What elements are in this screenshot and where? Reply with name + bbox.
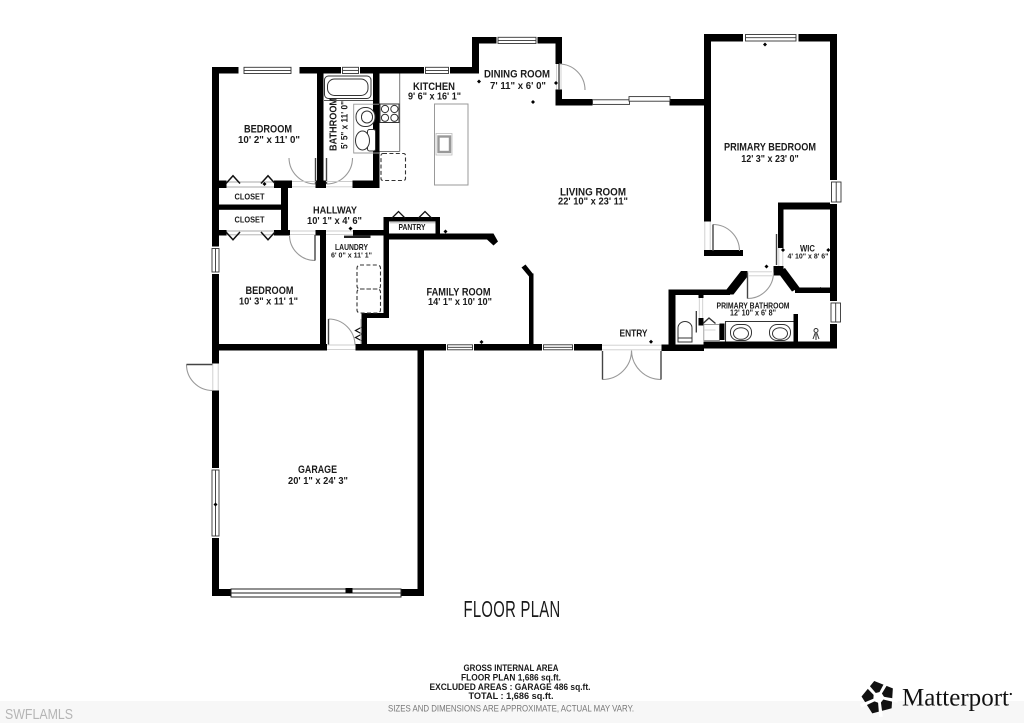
svg-text:7' 11" x 6' 0": 7' 11" x 6' 0" <box>490 81 546 92</box>
svg-text:SWFLAMLS: SWFLAMLS <box>5 707 73 723</box>
svg-text:10' 3" x 11' 1": 10' 3" x 11' 1" <box>239 297 298 308</box>
svg-text:14' 1" x 10' 10": 14' 1" x 10' 10" <box>428 297 492 308</box>
svg-text:BEDROOM: BEDROOM <box>246 285 294 297</box>
svg-text:9' 6" x 16' 1": 9' 6" x 16' 1" <box>408 92 461 103</box>
svg-text:PRIMARY BEDROOM: PRIMARY BEDROOM <box>724 142 816 154</box>
svg-text:22' 10" x 23' 11": 22' 10" x 23' 11" <box>558 197 628 208</box>
svg-text:20' 1" x 24' 3": 20' 1" x 24' 3" <box>288 476 348 487</box>
svg-text:10' 2" x 11' 0": 10' 2" x 11' 0" <box>238 135 300 146</box>
svg-text:FLOOR PLAN: FLOOR PLAN <box>464 596 561 622</box>
svg-text:GARAGE: GARAGE <box>298 464 337 476</box>
svg-text:CLOSET: CLOSET <box>235 215 266 225</box>
svg-text:BEDROOM: BEDROOM <box>244 124 292 136</box>
svg-text:4' 10" x 8' 6": 4' 10" x 8' 6" <box>788 252 829 261</box>
svg-text:10' 1" x 4' 6": 10' 1" x 4' 6" <box>307 216 362 227</box>
svg-text:HALLWAY: HALLWAY <box>313 206 357 217</box>
svg-text:5' 5" x 11' 0": 5' 5" x 11' 0" <box>340 101 351 149</box>
svg-text:12' 10" x 6' 8": 12' 10" x 6' 8" <box>730 309 776 318</box>
svg-text:PANTRY: PANTRY <box>399 222 426 232</box>
svg-text:BATHROOM: BATHROOM <box>328 98 340 151</box>
svg-text:6' 0" x 11' 1": 6' 0" x 11' 1" <box>331 251 372 260</box>
svg-text:ENTRY: ENTRY <box>620 329 648 340</box>
svg-text:Matterport: Matterport <box>902 685 1009 712</box>
svg-text:SIZES AND DIMENSIONS ARE APPRO: SIZES AND DIMENSIONS ARE APPROXIMATE, AC… <box>388 704 634 714</box>
svg-text:DINING ROOM: DINING ROOM <box>484 69 550 81</box>
svg-text:CLOSET: CLOSET <box>235 192 266 202</box>
svg-text:TOTAL : 1,686 sq.ft.: TOTAL : 1,686 sq.ft. <box>469 691 554 702</box>
svg-text:12' 3" x 23' 0": 12' 3" x 23' 0" <box>741 154 799 165</box>
